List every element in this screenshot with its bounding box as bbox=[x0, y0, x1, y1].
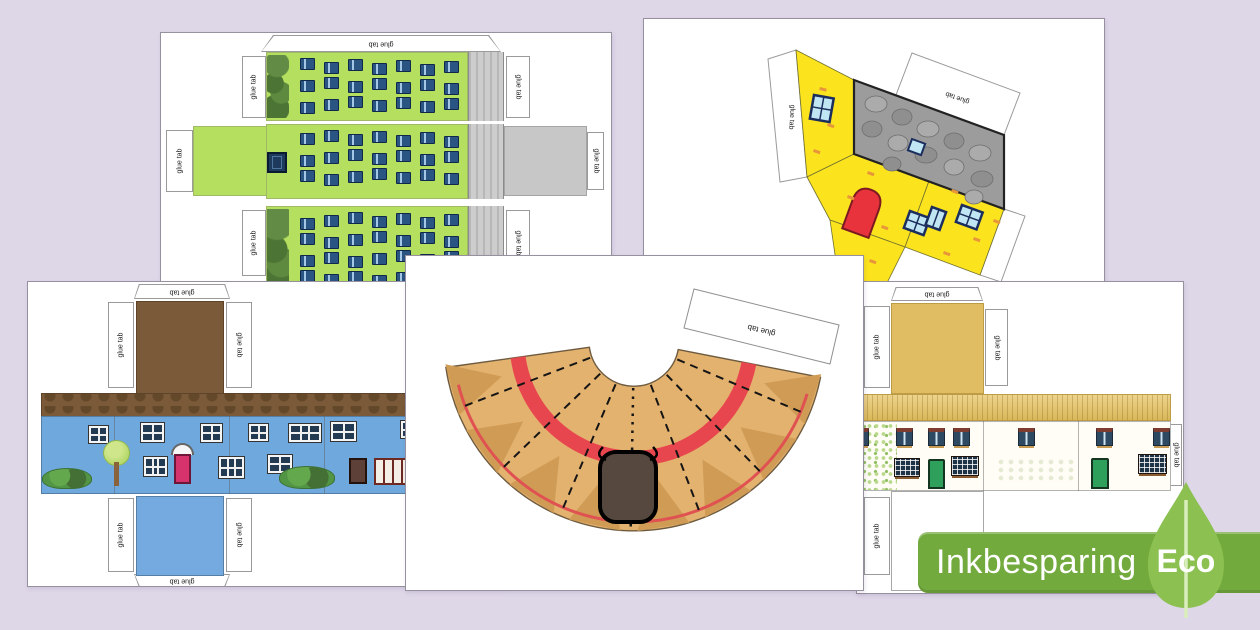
tower-window bbox=[444, 61, 459, 73]
glue-tab-label: glue tab bbox=[236, 523, 243, 548]
tower-window bbox=[348, 81, 363, 93]
glue-tab-label: glue tab bbox=[925, 291, 950, 298]
tower-window bbox=[300, 102, 315, 114]
tower-window bbox=[444, 98, 459, 110]
tower-window bbox=[372, 168, 387, 180]
tower-window bbox=[396, 82, 411, 94]
glue-tab: glue tab bbox=[864, 306, 890, 388]
glue-tab-label: glue tab bbox=[170, 577, 195, 584]
row-small-window bbox=[896, 428, 913, 446]
house-window bbox=[219, 457, 244, 478]
tower-window bbox=[444, 236, 459, 248]
glue-tab: glue tab bbox=[166, 130, 193, 192]
row-plaid-window bbox=[1138, 454, 1167, 474]
tower-window bbox=[396, 235, 411, 247]
tower-window bbox=[348, 59, 363, 71]
tower-roof-stripe bbox=[468, 124, 504, 199]
glue-tab: glue tab bbox=[985, 309, 1008, 386]
glue-tab-label: glue tab bbox=[592, 149, 599, 174]
tower-window bbox=[444, 173, 459, 185]
house-window bbox=[201, 424, 222, 442]
tower-door bbox=[267, 152, 287, 173]
glue-tab-label: glue tab bbox=[993, 335, 1000, 360]
glue-tab-label: glue tab bbox=[251, 231, 258, 256]
tower-window bbox=[300, 170, 315, 182]
glue-tab: glue tab bbox=[226, 498, 252, 572]
preview-canvas: glue tabglue tabglue tabglue tabglue tab… bbox=[0, 0, 1260, 630]
glue-tab-label: glue tab bbox=[170, 288, 195, 295]
tree-trunk bbox=[114, 462, 119, 486]
glue-tab: glue tab bbox=[587, 132, 604, 190]
tower-window bbox=[324, 77, 339, 89]
tower-window bbox=[420, 169, 435, 181]
tower-window bbox=[420, 217, 435, 229]
glue-tab: glue tab bbox=[226, 302, 252, 388]
house-roof-flap bbox=[136, 301, 224, 394]
tower-window bbox=[300, 155, 315, 167]
page-roundhouse-cone-net: glue tab bbox=[405, 255, 864, 591]
tower-window bbox=[420, 232, 435, 244]
row-plaid-window bbox=[894, 458, 920, 477]
glue-tab-label: glue tab bbox=[118, 333, 125, 358]
tower-window bbox=[420, 64, 435, 76]
tower-window bbox=[300, 255, 315, 267]
tower-window bbox=[300, 133, 315, 145]
glue-tab: glue tab bbox=[864, 497, 890, 575]
tower-window bbox=[372, 216, 387, 228]
house-window bbox=[331, 422, 356, 441]
tower-window bbox=[300, 218, 315, 230]
glue-tab: glue tab bbox=[891, 287, 983, 301]
tower-window bbox=[324, 99, 339, 111]
page-yellow-cottage-net: glue tab glue tab bbox=[643, 18, 1105, 290]
tower-roof-stripe bbox=[468, 52, 504, 121]
house-window bbox=[89, 426, 108, 443]
row-plaid-window bbox=[951, 456, 979, 476]
tower-window bbox=[348, 149, 363, 161]
tower-window bbox=[300, 80, 315, 92]
glue-tab: glue tab bbox=[261, 35, 501, 52]
glue-tab-label: glue tab bbox=[874, 524, 881, 549]
tower-window bbox=[324, 62, 339, 74]
tower-window bbox=[372, 100, 387, 112]
glue-tab-label: glue tab bbox=[787, 104, 795, 129]
tower-window bbox=[396, 135, 411, 147]
tower-window bbox=[372, 153, 387, 165]
tower-window bbox=[324, 174, 339, 186]
tower-window bbox=[396, 60, 411, 72]
tower-window bbox=[396, 97, 411, 109]
glue-tab-label: glue tab bbox=[874, 335, 881, 360]
tower-window bbox=[420, 132, 435, 144]
glue-tab-label: glue tab bbox=[236, 333, 243, 358]
tower-window bbox=[420, 154, 435, 166]
tower-window bbox=[396, 150, 411, 162]
house-window bbox=[249, 424, 268, 441]
tower-window bbox=[420, 101, 435, 113]
tower-window bbox=[444, 214, 459, 226]
glue-tab-label: glue tab bbox=[118, 523, 125, 548]
tower-window bbox=[372, 231, 387, 243]
tower-window bbox=[372, 131, 387, 143]
fold-line bbox=[229, 416, 230, 494]
tower-front-face bbox=[266, 124, 468, 199]
ghost-vine-motifs bbox=[996, 458, 1076, 482]
row-green-door bbox=[1091, 458, 1109, 489]
house-window bbox=[289, 424, 321, 442]
row-small-window bbox=[953, 428, 970, 446]
row-small-window bbox=[1153, 428, 1170, 446]
tower-window bbox=[348, 96, 363, 108]
glue-tab-label: glue tab bbox=[515, 75, 522, 100]
row-roof-strip bbox=[856, 394, 1171, 421]
tower-side-wall-grey bbox=[504, 126, 587, 196]
glue-tab: glue tab bbox=[108, 498, 134, 572]
glue-tab-label: glue tab bbox=[176, 149, 183, 174]
tower-window bbox=[348, 171, 363, 183]
tower-tree bbox=[267, 55, 289, 118]
tower-window bbox=[396, 213, 411, 225]
tower-window bbox=[300, 58, 315, 70]
fold-line bbox=[1078, 421, 1079, 491]
tower-window bbox=[324, 252, 339, 264]
pink-front-door bbox=[174, 454, 191, 484]
tower-window bbox=[324, 237, 339, 249]
glue-tab-label: glue tab bbox=[369, 40, 394, 47]
tower-window bbox=[372, 63, 387, 75]
glue-tab-label: glue tab bbox=[251, 75, 258, 100]
glue-tab-label: glue tab bbox=[515, 231, 522, 256]
tower-window bbox=[348, 234, 363, 246]
tower-window bbox=[444, 151, 459, 163]
fold-line bbox=[983, 421, 984, 491]
tower-window bbox=[300, 233, 315, 245]
house-window bbox=[141, 423, 164, 442]
tower-side-wall-green bbox=[193, 126, 268, 196]
tower-window bbox=[324, 130, 339, 142]
yellow-cottage-net-graphic: glue tab glue tab bbox=[644, 19, 1104, 289]
glue-tab: glue tab bbox=[506, 56, 530, 118]
glue-tab: glue tab bbox=[134, 284, 230, 299]
glue-tab: glue tab bbox=[242, 56, 266, 118]
tower-window bbox=[324, 152, 339, 164]
bush bbox=[42, 468, 92, 489]
gable-window bbox=[810, 95, 834, 122]
row-small-window bbox=[928, 428, 945, 446]
glue-tab: glue tab bbox=[1170, 424, 1182, 486]
tower-window bbox=[444, 83, 459, 95]
bush bbox=[279, 466, 335, 489]
row-small-window bbox=[1096, 428, 1113, 446]
tower-window bbox=[372, 253, 387, 265]
house-window bbox=[144, 457, 167, 476]
brown-door bbox=[349, 458, 367, 484]
tower-window bbox=[372, 78, 387, 90]
tower-window bbox=[420, 79, 435, 91]
glue-tab: glue tab bbox=[242, 210, 266, 276]
tower-window bbox=[444, 136, 459, 148]
ink-saver-badge-label: Inkbesparing bbox=[936, 532, 1137, 593]
row-green-door bbox=[928, 459, 945, 489]
tower-window bbox=[348, 134, 363, 146]
tower-window bbox=[348, 256, 363, 268]
eco-badge-label: Eco bbox=[1146, 543, 1226, 580]
tower-front-face bbox=[266, 52, 468, 121]
glue-tab-label: glue tab bbox=[1173, 443, 1180, 468]
glue-tab: glue tab bbox=[108, 302, 134, 388]
roundhouse-door bbox=[600, 452, 656, 522]
row-roof-flap bbox=[891, 303, 984, 394]
row-small-window bbox=[1018, 428, 1035, 446]
tower-window bbox=[396, 172, 411, 184]
tower-window bbox=[348, 212, 363, 224]
tower-window bbox=[324, 215, 339, 227]
house-bottom-flap bbox=[136, 496, 224, 576]
roundhouse-net-graphic: glue tab bbox=[406, 256, 863, 590]
